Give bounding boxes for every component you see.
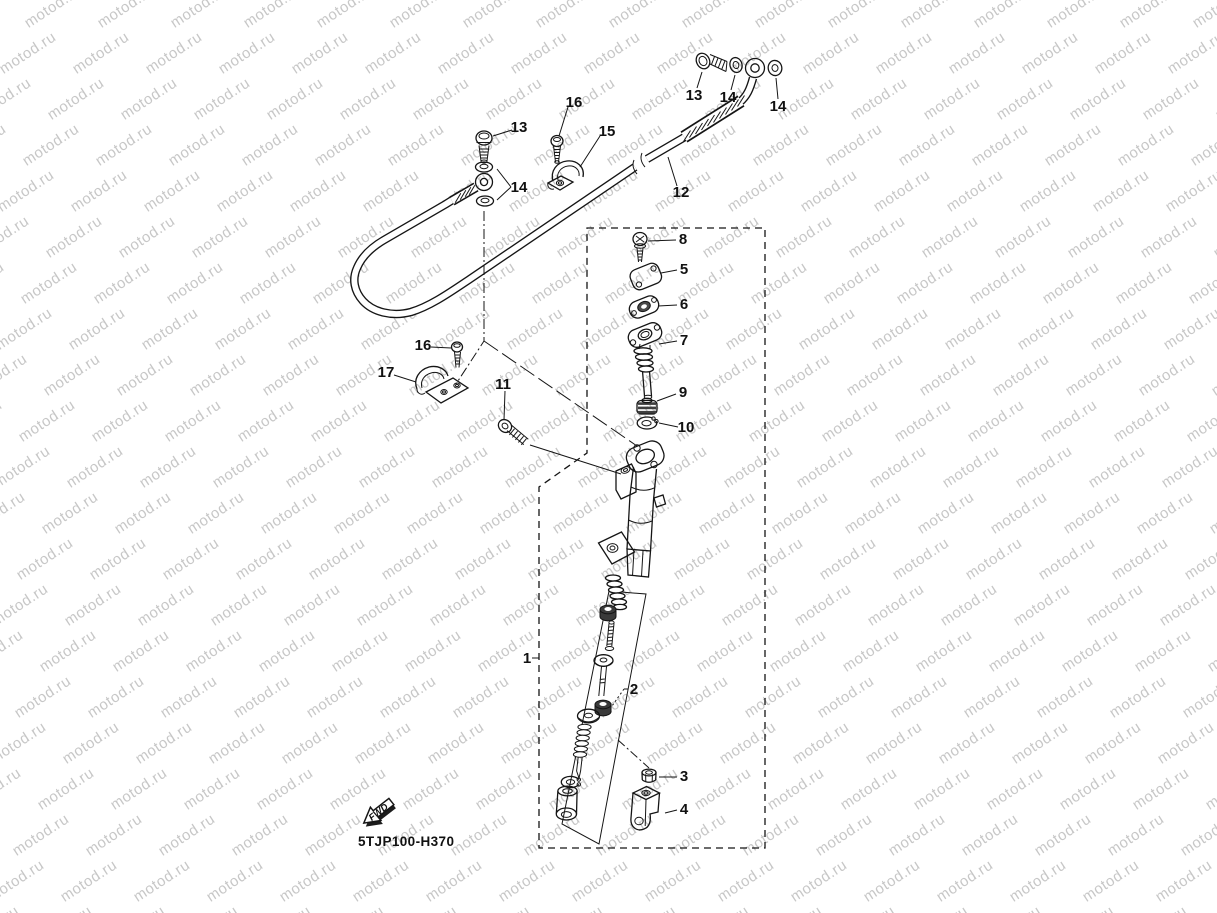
kit-dashed-box — [539, 228, 765, 848]
callout-11-bolt: 11 — [495, 376, 511, 393]
callout-16-bolt-upper: 16 — [566, 94, 583, 111]
piston-spring — [573, 724, 591, 757]
callout-14-washer-right-inner: 14 — [720, 89, 737, 106]
piston-kit — [556, 605, 616, 820]
bolt-11-axis-line — [530, 445, 621, 474]
callout-10-circlip: 10 — [678, 419, 695, 436]
callout-4-joint: 4 — [680, 801, 689, 818]
callout-6-diaphragm: 6 — [680, 296, 688, 313]
screw-8 — [633, 233, 647, 263]
callout-12-brake-pipe: 12 — [673, 184, 690, 201]
leader-lines — [394, 72, 778, 813]
pushrod-tip — [577, 757, 583, 778]
lock-nut-3 — [642, 769, 656, 782]
exploded-parts-diagram: 13 14 14 12 16 13 15 14 8 5 6 7 9 10 16 … — [0, 0, 1217, 913]
repair-kit-parallelogram — [562, 591, 646, 844]
callout-14-washers-left: 14 — [511, 179, 528, 196]
callout-14-washer-right-outer: 14 — [770, 98, 787, 115]
callout-16-bolt-mid: 16 — [415, 337, 432, 354]
callout-1-master-cylinder-assy: 1 — [523, 650, 531, 667]
banjo-eye-left — [476, 174, 493, 191]
brake-hose — [354, 59, 764, 314]
cap-plate-5 — [628, 261, 664, 292]
pushrod-upper — [605, 621, 614, 651]
rod-joint-4 — [631, 787, 660, 830]
banjo-bolt-right — [694, 51, 727, 71]
banjo-eye-right — [746, 59, 765, 78]
piston-disc — [578, 709, 600, 723]
callout-3-nut: 3 — [680, 768, 688, 785]
clamp-bolt-16-mid — [452, 342, 463, 368]
callout-8-screw: 8 — [679, 231, 687, 248]
callout-9-grommet: 9 — [679, 384, 687, 401]
pushrod-mid — [599, 667, 607, 697]
clamp-bolt-16-upper — [551, 136, 563, 164]
seal-cup-lower — [595, 700, 611, 716]
callout-17-holder: 17 — [378, 364, 395, 381]
mount-bolt-11 — [496, 417, 529, 445]
callout-13-hose-bolt-left: 13 — [511, 119, 528, 136]
washer-right-outer — [767, 59, 783, 76]
callout-7-reservoir-joint: 7 — [680, 332, 688, 349]
washer-right-inner — [728, 56, 743, 74]
reservoir-joint-7 — [626, 320, 664, 399]
callout-labels: 13 14 14 12 16 13 15 14 8 5 6 7 9 10 16 … — [378, 87, 787, 818]
diagram-code: 5TJP100-H370 — [358, 834, 454, 849]
callout-5-cap-plate: 5 — [680, 261, 688, 278]
callout-13-hose-bolt-right: 13 — [686, 87, 703, 104]
centre-lines — [456, 211, 649, 768]
flanged-seat — [594, 655, 613, 667]
washer-left-lower — [477, 196, 494, 206]
circlip-10 — [637, 417, 658, 430]
fwd-arrow: FWD — [364, 798, 396, 826]
grommet-9 — [637, 398, 657, 414]
parts-diagram-page: motod.rumotod.rumotod.rumotod.rumotod.ru… — [0, 0, 1217, 913]
master-cylinder-body — [599, 438, 668, 577]
callout-2-cylinder-kit: 2 — [630, 681, 638, 698]
diaphragm-6 — [627, 293, 661, 320]
callout-15-clamp: 15 — [599, 123, 616, 140]
pipe-break — [633, 153, 645, 174]
pipe-holder-17 — [416, 366, 468, 403]
hose-clamp-15 — [548, 161, 584, 190]
seal-cup-upper — [600, 605, 616, 621]
banjo-bolt-left — [476, 131, 492, 163]
